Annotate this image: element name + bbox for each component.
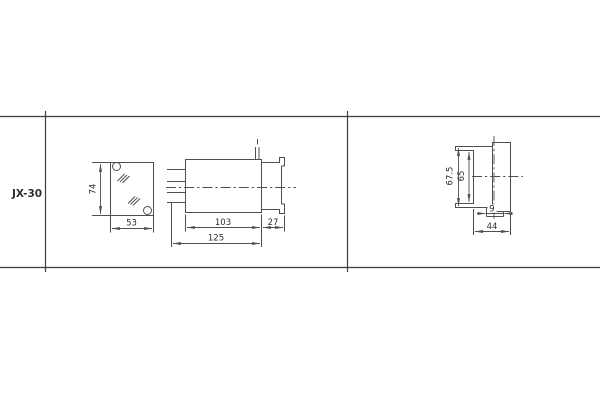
rear-view: 67.5 65 9 44 — [446, 136, 524, 235]
rear-slot-width-value: 9 — [489, 205, 494, 215]
front-width-value: 53 — [126, 219, 137, 229]
top-post — [256, 139, 260, 160]
side-flange-depth-value: 27 — [268, 218, 279, 228]
rear-overall-width-value: 44 — [487, 222, 498, 232]
mounting-flange — [262, 158, 285, 214]
catalog-dimension-page: JX-30 74 53 — [0, 0, 600, 400]
terminal-pins — [167, 170, 186, 248]
front-hole-top-left — [113, 163, 121, 171]
side-body-outline — [186, 160, 262, 213]
front-height-value: 74 — [89, 184, 99, 195]
front-hole-bottom-right — [144, 207, 152, 215]
model-label: JX-30 — [11, 188, 42, 200]
hatch-mark-lower — [128, 197, 140, 206]
technical-drawing: JX-30 74 53 — [0, 0, 600, 400]
front-extension-lines — [92, 163, 154, 233]
side-body-length-value: 103 — [215, 218, 231, 228]
rear-inner-height-value: 65 — [457, 171, 467, 182]
hatch-mark-upper — [118, 174, 130, 183]
rear-slot-width-dimension: 9 — [477, 205, 513, 215]
rear-outer-height-value: 67.5 — [446, 167, 456, 186]
side-overall-length-value: 125 — [208, 234, 224, 244]
side-view: 103 27 125 — [166, 139, 296, 247]
front-view: 74 53 — [89, 163, 154, 233]
